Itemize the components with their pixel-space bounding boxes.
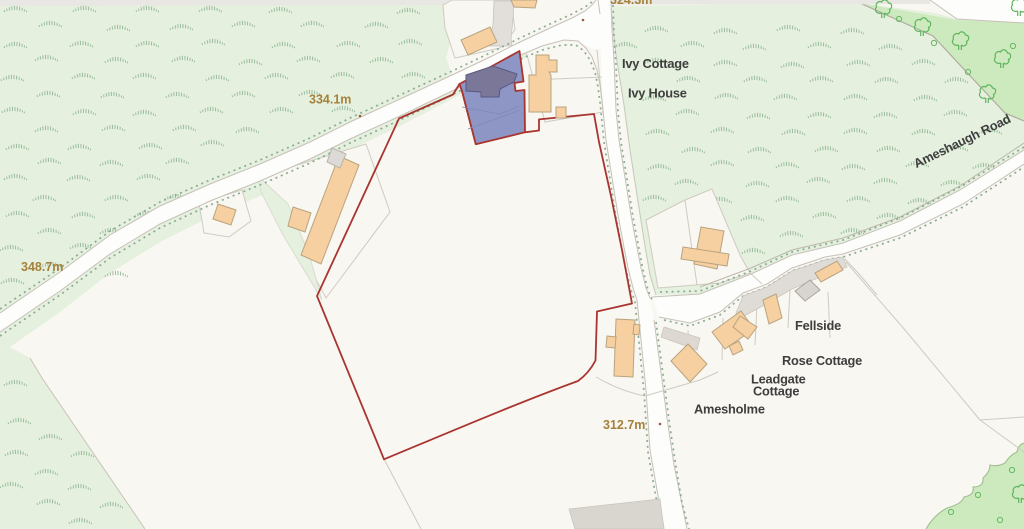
svg-text:334.1m: 334.1m — [309, 93, 351, 107]
svg-text:324.3m: 324.3m — [610, 0, 652, 7]
svg-text:312.7m: 312.7m — [603, 418, 645, 432]
svg-text:Fellside: Fellside — [795, 318, 841, 333]
svg-text:348.7m: 348.7m — [21, 260, 63, 274]
svg-text:Rose Cottage: Rose Cottage — [782, 353, 862, 368]
svg-text:Ivy Cottage: Ivy Cottage — [622, 56, 689, 71]
svg-text:Ivy House: Ivy House — [628, 86, 687, 101]
svg-text:Amesholme: Amesholme — [694, 402, 765, 417]
svg-text:Cottage: Cottage — [753, 384, 799, 399]
